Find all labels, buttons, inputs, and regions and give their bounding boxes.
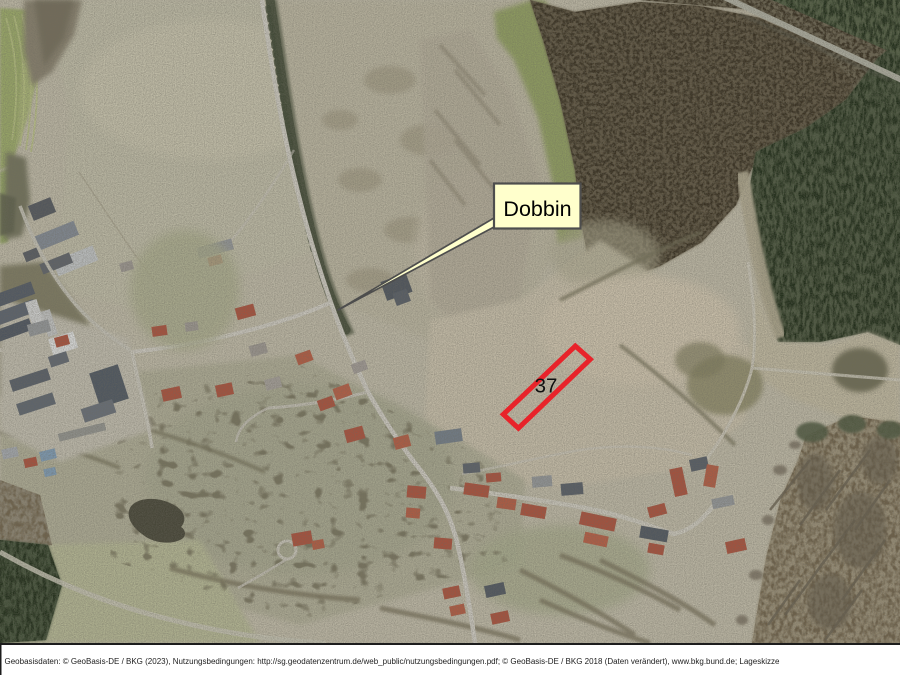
- svg-text:Geobasisdaten: © GeoBasis-DE /: Geobasisdaten: © GeoBasis-DE / BKG (2023…: [5, 657, 780, 666]
- svg-text:Dobbin: Dobbin: [503, 197, 571, 221]
- svg-text:37: 37: [535, 375, 558, 398]
